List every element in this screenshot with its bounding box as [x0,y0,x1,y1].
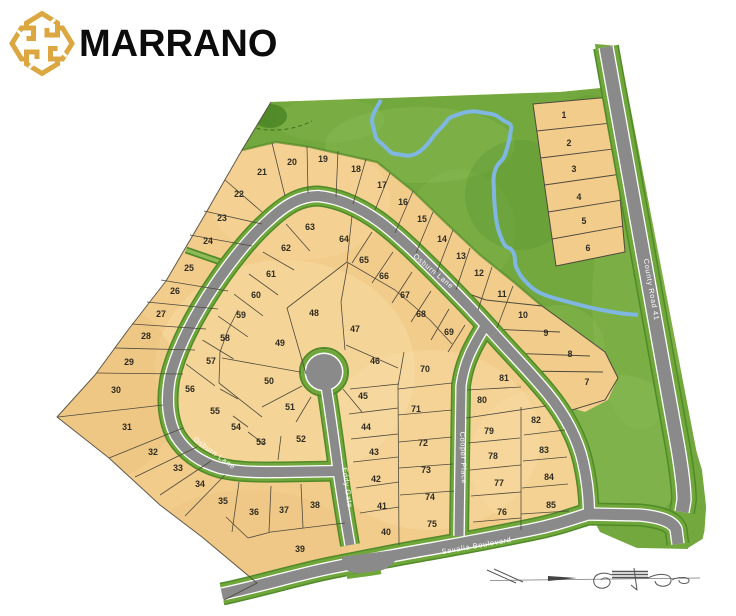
svg-text:63: 63 [305,222,315,232]
svg-text:49: 49 [275,338,285,348]
svg-text:2: 2 [567,138,572,148]
svg-text:45: 45 [358,391,368,401]
svg-text:13: 13 [456,251,466,261]
svg-text:26: 26 [170,286,180,296]
svg-text:1: 1 [562,110,567,120]
svg-text:6: 6 [586,243,591,253]
svg-text:MARRANO: MARRANO [79,23,277,65]
svg-text:40: 40 [381,527,391,537]
svg-text:39: 39 [295,544,305,554]
svg-text:80: 80 [477,395,487,405]
svg-text:33: 33 [173,463,183,473]
svg-text:16: 16 [398,197,408,207]
svg-text:44: 44 [361,422,371,432]
svg-text:59: 59 [236,310,246,320]
svg-text:50: 50 [264,376,274,386]
svg-text:8: 8 [568,349,573,359]
svg-text:78: 78 [488,451,498,461]
svg-text:42: 42 [371,474,381,484]
svg-text:24: 24 [203,236,213,246]
svg-text:46: 46 [370,356,380,366]
svg-text:37: 37 [279,505,289,515]
svg-text:35: 35 [218,496,228,506]
svg-text:19: 19 [318,154,328,164]
svg-text:82: 82 [531,415,541,425]
svg-text:57: 57 [206,356,216,366]
svg-text:41: 41 [377,501,387,511]
svg-text:29: 29 [124,357,134,367]
svg-text:28: 28 [141,331,151,341]
svg-text:4: 4 [577,192,582,202]
svg-text:43: 43 [369,447,379,457]
svg-text:15: 15 [417,214,427,224]
svg-text:36: 36 [249,507,259,517]
svg-text:32: 32 [148,447,158,457]
svg-text:31: 31 [122,422,132,432]
svg-text:11: 11 [497,289,506,299]
svg-text:65: 65 [359,255,369,265]
svg-text:55: 55 [210,406,220,416]
svg-text:47: 47 [350,324,360,334]
svg-text:66: 66 [379,271,389,281]
svg-text:25: 25 [184,263,194,273]
svg-text:53: 53 [256,437,266,447]
svg-text:69: 69 [444,327,454,337]
svg-text:61: 61 [266,269,276,279]
svg-text:56: 56 [185,384,195,394]
svg-text:27: 27 [156,309,166,319]
svg-text:3: 3 [572,164,577,174]
svg-text:Cooper Place: Cooper Place [458,431,469,484]
svg-text:18: 18 [351,164,361,174]
svg-text:79: 79 [484,426,494,436]
svg-text:17: 17 [377,180,387,190]
svg-text:34: 34 [195,479,205,489]
svg-text:74: 74 [425,492,435,502]
svg-text:12: 12 [474,268,484,278]
svg-text:14: 14 [437,234,447,244]
svg-text:62: 62 [281,243,291,253]
svg-text:81: 81 [499,373,509,383]
svg-text:73: 73 [421,465,431,475]
svg-text:21: 21 [257,167,267,177]
svg-text:75: 75 [427,519,437,529]
svg-text:83: 83 [539,445,549,455]
svg-text:38: 38 [310,500,320,510]
svg-text:76: 76 [497,507,507,517]
svg-text:77: 77 [494,478,504,488]
svg-text:68: 68 [416,309,426,319]
svg-text:23: 23 [217,213,227,223]
svg-text:85: 85 [546,500,556,510]
svg-text:67: 67 [400,290,410,300]
svg-text:54: 54 [231,422,241,432]
svg-text:9: 9 [544,328,549,338]
svg-text:5: 5 [582,216,587,226]
svg-text:60: 60 [251,290,261,300]
svg-text:52: 52 [296,434,306,444]
svg-text:30: 30 [111,385,121,395]
svg-text:20: 20 [287,157,297,167]
svg-text:64: 64 [339,234,349,244]
svg-text:71: 71 [411,404,421,414]
svg-text:58: 58 [220,333,230,343]
svg-text:22: 22 [234,189,244,199]
svg-text:10: 10 [518,310,528,320]
svg-text:51: 51 [285,402,295,412]
svg-text:72: 72 [418,438,428,448]
svg-text:70: 70 [420,364,430,374]
svg-text:84: 84 [544,472,554,482]
svg-text:48: 48 [309,308,319,318]
svg-text:7: 7 [585,377,590,387]
